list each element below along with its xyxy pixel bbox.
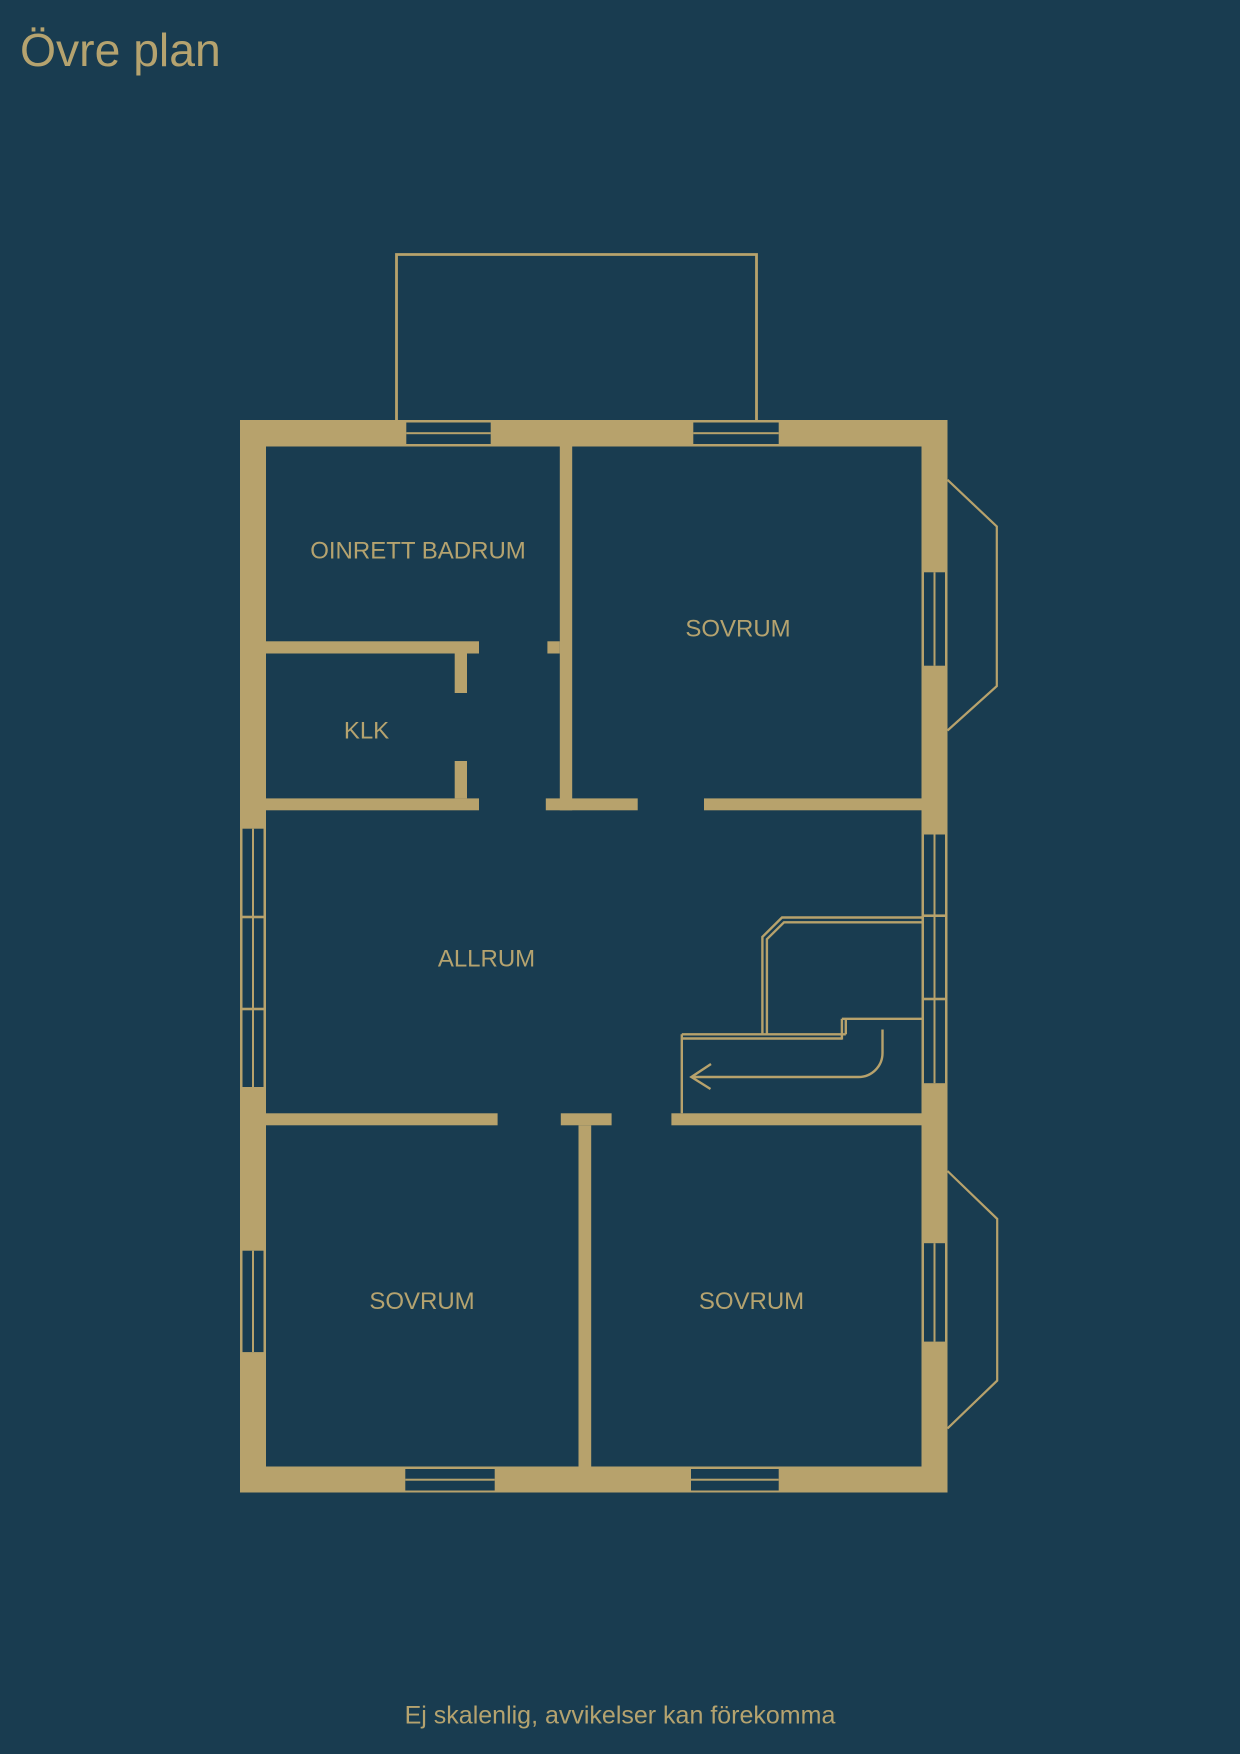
svg-text:OINRETT BADRUM: OINRETT BADRUM [310,538,526,565]
svg-text:SOVRUM: SOVRUM [685,616,790,643]
svg-text:SOVRUM: SOVRUM [699,1288,804,1315]
svg-text:KLK: KLK [344,718,389,745]
svg-text:Ej skalenlig, avvikelser kan f: Ej skalenlig, avvikelser kan förekomma [405,1702,836,1730]
svg-text:ALLRUM: ALLRUM [438,946,535,973]
svg-text:SOVRUM: SOVRUM [369,1288,474,1315]
svg-text:Övre plan: Övre plan [20,24,221,76]
